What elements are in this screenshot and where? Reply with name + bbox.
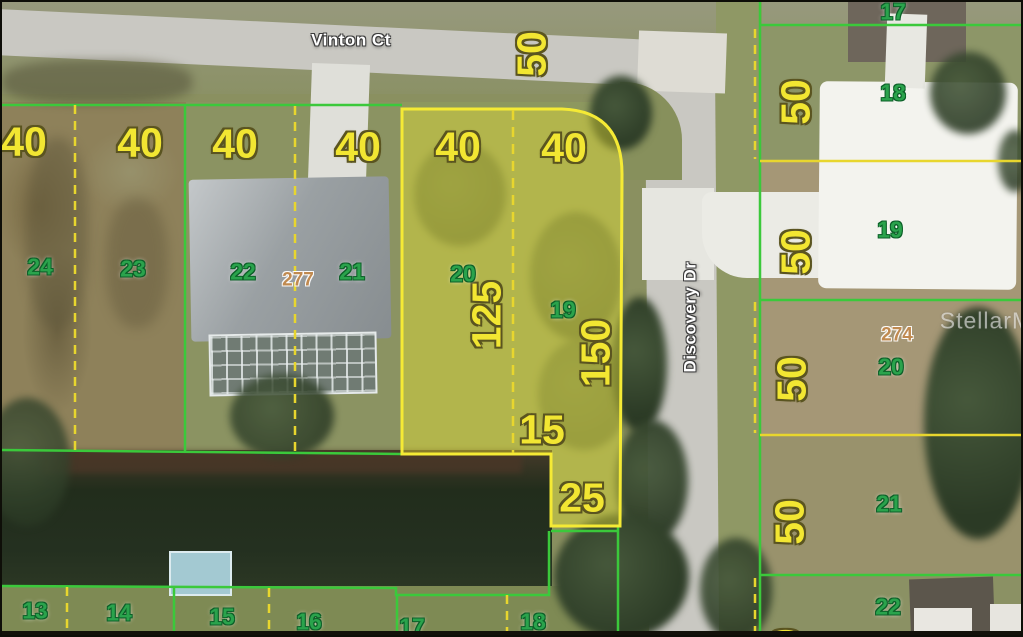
parcel-id-label: 277	[282, 271, 314, 290]
dimension-label: 50	[770, 499, 811, 545]
lot-number-label: 24	[27, 256, 53, 279]
dimension-label: 40	[1, 122, 47, 163]
dimension-label: 125	[467, 281, 508, 349]
dimension-label: 50	[776, 229, 817, 275]
lot-number-label: 15	[209, 606, 235, 629]
map-labels-layer: 4040404040405012515015255050505050242322…	[2, 2, 1023, 637]
lot-number-label: 21	[339, 261, 365, 284]
dimension-label: 150	[576, 319, 617, 387]
dimension-label: 40	[212, 124, 258, 165]
aerial-parcel-map[interactable]: 4040404040405012515015255050505050242322…	[0, 0, 1023, 637]
image-bottom-border	[2, 631, 1023, 637]
lot-number-label: 20	[450, 263, 476, 286]
watermark: StellarMLS	[940, 310, 1023, 333]
dimension-label: 25	[559, 478, 605, 519]
dimension-label: 40	[541, 128, 587, 169]
dimension-label: 40	[335, 127, 381, 168]
lot-number-label: 17	[880, 1, 906, 24]
lot-number-label: 13	[22, 600, 48, 623]
lot-number-label: 19	[550, 299, 576, 322]
dimension-label: 50	[772, 356, 813, 402]
lot-number-label: 23	[120, 258, 146, 281]
lot-number-label: 18	[880, 82, 906, 105]
parcel-id-label: 274	[881, 326, 913, 345]
lot-number-label: 19	[877, 219, 903, 242]
street-label: Discovery Dr	[682, 262, 699, 373]
lot-number-label: 22	[875, 596, 901, 619]
dimension-label: 40	[435, 127, 481, 168]
lot-number-label: 20	[878, 356, 904, 379]
dimension-label: 50	[776, 79, 817, 125]
street-label: Vinton Ct	[311, 32, 391, 49]
dimension-label: 50	[512, 31, 553, 77]
lot-number-label: 14	[106, 602, 132, 625]
dimension-label: 15	[519, 410, 565, 451]
dimension-label: 40	[117, 123, 163, 164]
lot-number-label: 21	[876, 493, 902, 516]
lot-number-label: 22	[230, 261, 256, 284]
